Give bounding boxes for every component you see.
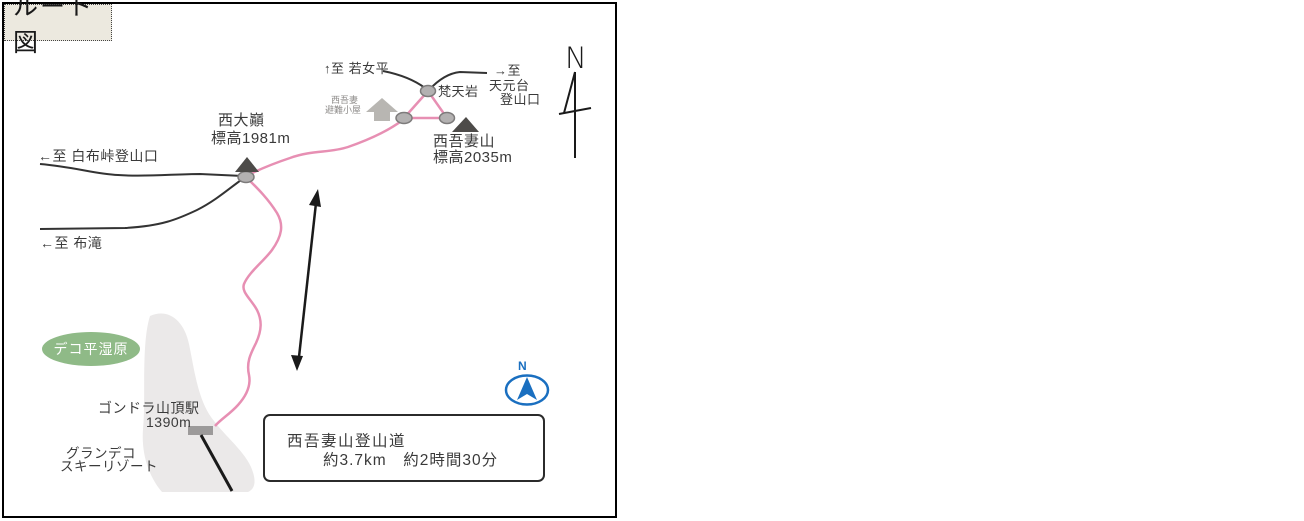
trail-descent-segment [215, 177, 281, 426]
hut-icon [366, 98, 398, 121]
label-hut-2: 避難小屋 [325, 105, 361, 115]
label-gondola-station-elevation: 1390m [146, 414, 191, 430]
trail-info-distance-time: 約3.7km 約2時間30分 [323, 448, 498, 470]
label-to-wakajotaira: ↑至 若女平 [324, 62, 389, 77]
peak-icon-nishiazuma [452, 117, 479, 132]
route-map-page: ルート図 N N ↑至 若女平 →至 天元台 登山口 ←至 白布峠登山口 ←至 … [0, 0, 1304, 521]
gondola-station-icon [188, 426, 213, 435]
label-nishidaiten-elevation: 標高1981m [211, 130, 290, 147]
junction-loop-east [440, 113, 455, 124]
label-grandeco-2: スキーリゾート [60, 459, 158, 475]
label-to-shirabu-pass: ←至 白布峠登山口 [38, 148, 158, 164]
junction-nishidaiten [238, 172, 254, 183]
north-arrow-label: N [565, 41, 587, 75]
label-dekodaira-wetland: デコ平湿原 [42, 341, 140, 357]
label-hut-1: 西吾妻 [331, 95, 358, 105]
junction-bonteniwa [421, 86, 436, 97]
double-arrow-icon [291, 189, 321, 371]
label-nishiazuma-elevation: 標高2035m [433, 149, 512, 166]
trail-ridge-segment [246, 119, 404, 176]
road-to-wakajotaira [383, 71, 425, 88]
label-to-tengendai-1: →至 [494, 64, 521, 79]
label-bonteniwa: 梵天岩 [438, 85, 479, 100]
label-to-nunotaki: ←至 布滝 [40, 235, 102, 251]
map-drawing-layer [0, 0, 1304, 521]
peak-icon-nishidaiten [235, 157, 259, 172]
label-nishidaiten-name: 西大巓 [218, 112, 265, 129]
compass-icon-label: N [518, 359, 527, 373]
junction-loop-west [396, 113, 412, 124]
map-title: ルート図 [13, 0, 111, 59]
label-to-tengendai-3: 登山口 [500, 93, 541, 108]
compass-icon [506, 376, 548, 405]
label-nishiazuma-name: 西吾妻山 [433, 133, 495, 150]
road-to-nunotaki [40, 178, 244, 229]
road-to-shirabu-pass [40, 164, 243, 176]
north-arrow-icon [559, 72, 591, 158]
map-title-box: ルート図 [4, 4, 112, 41]
